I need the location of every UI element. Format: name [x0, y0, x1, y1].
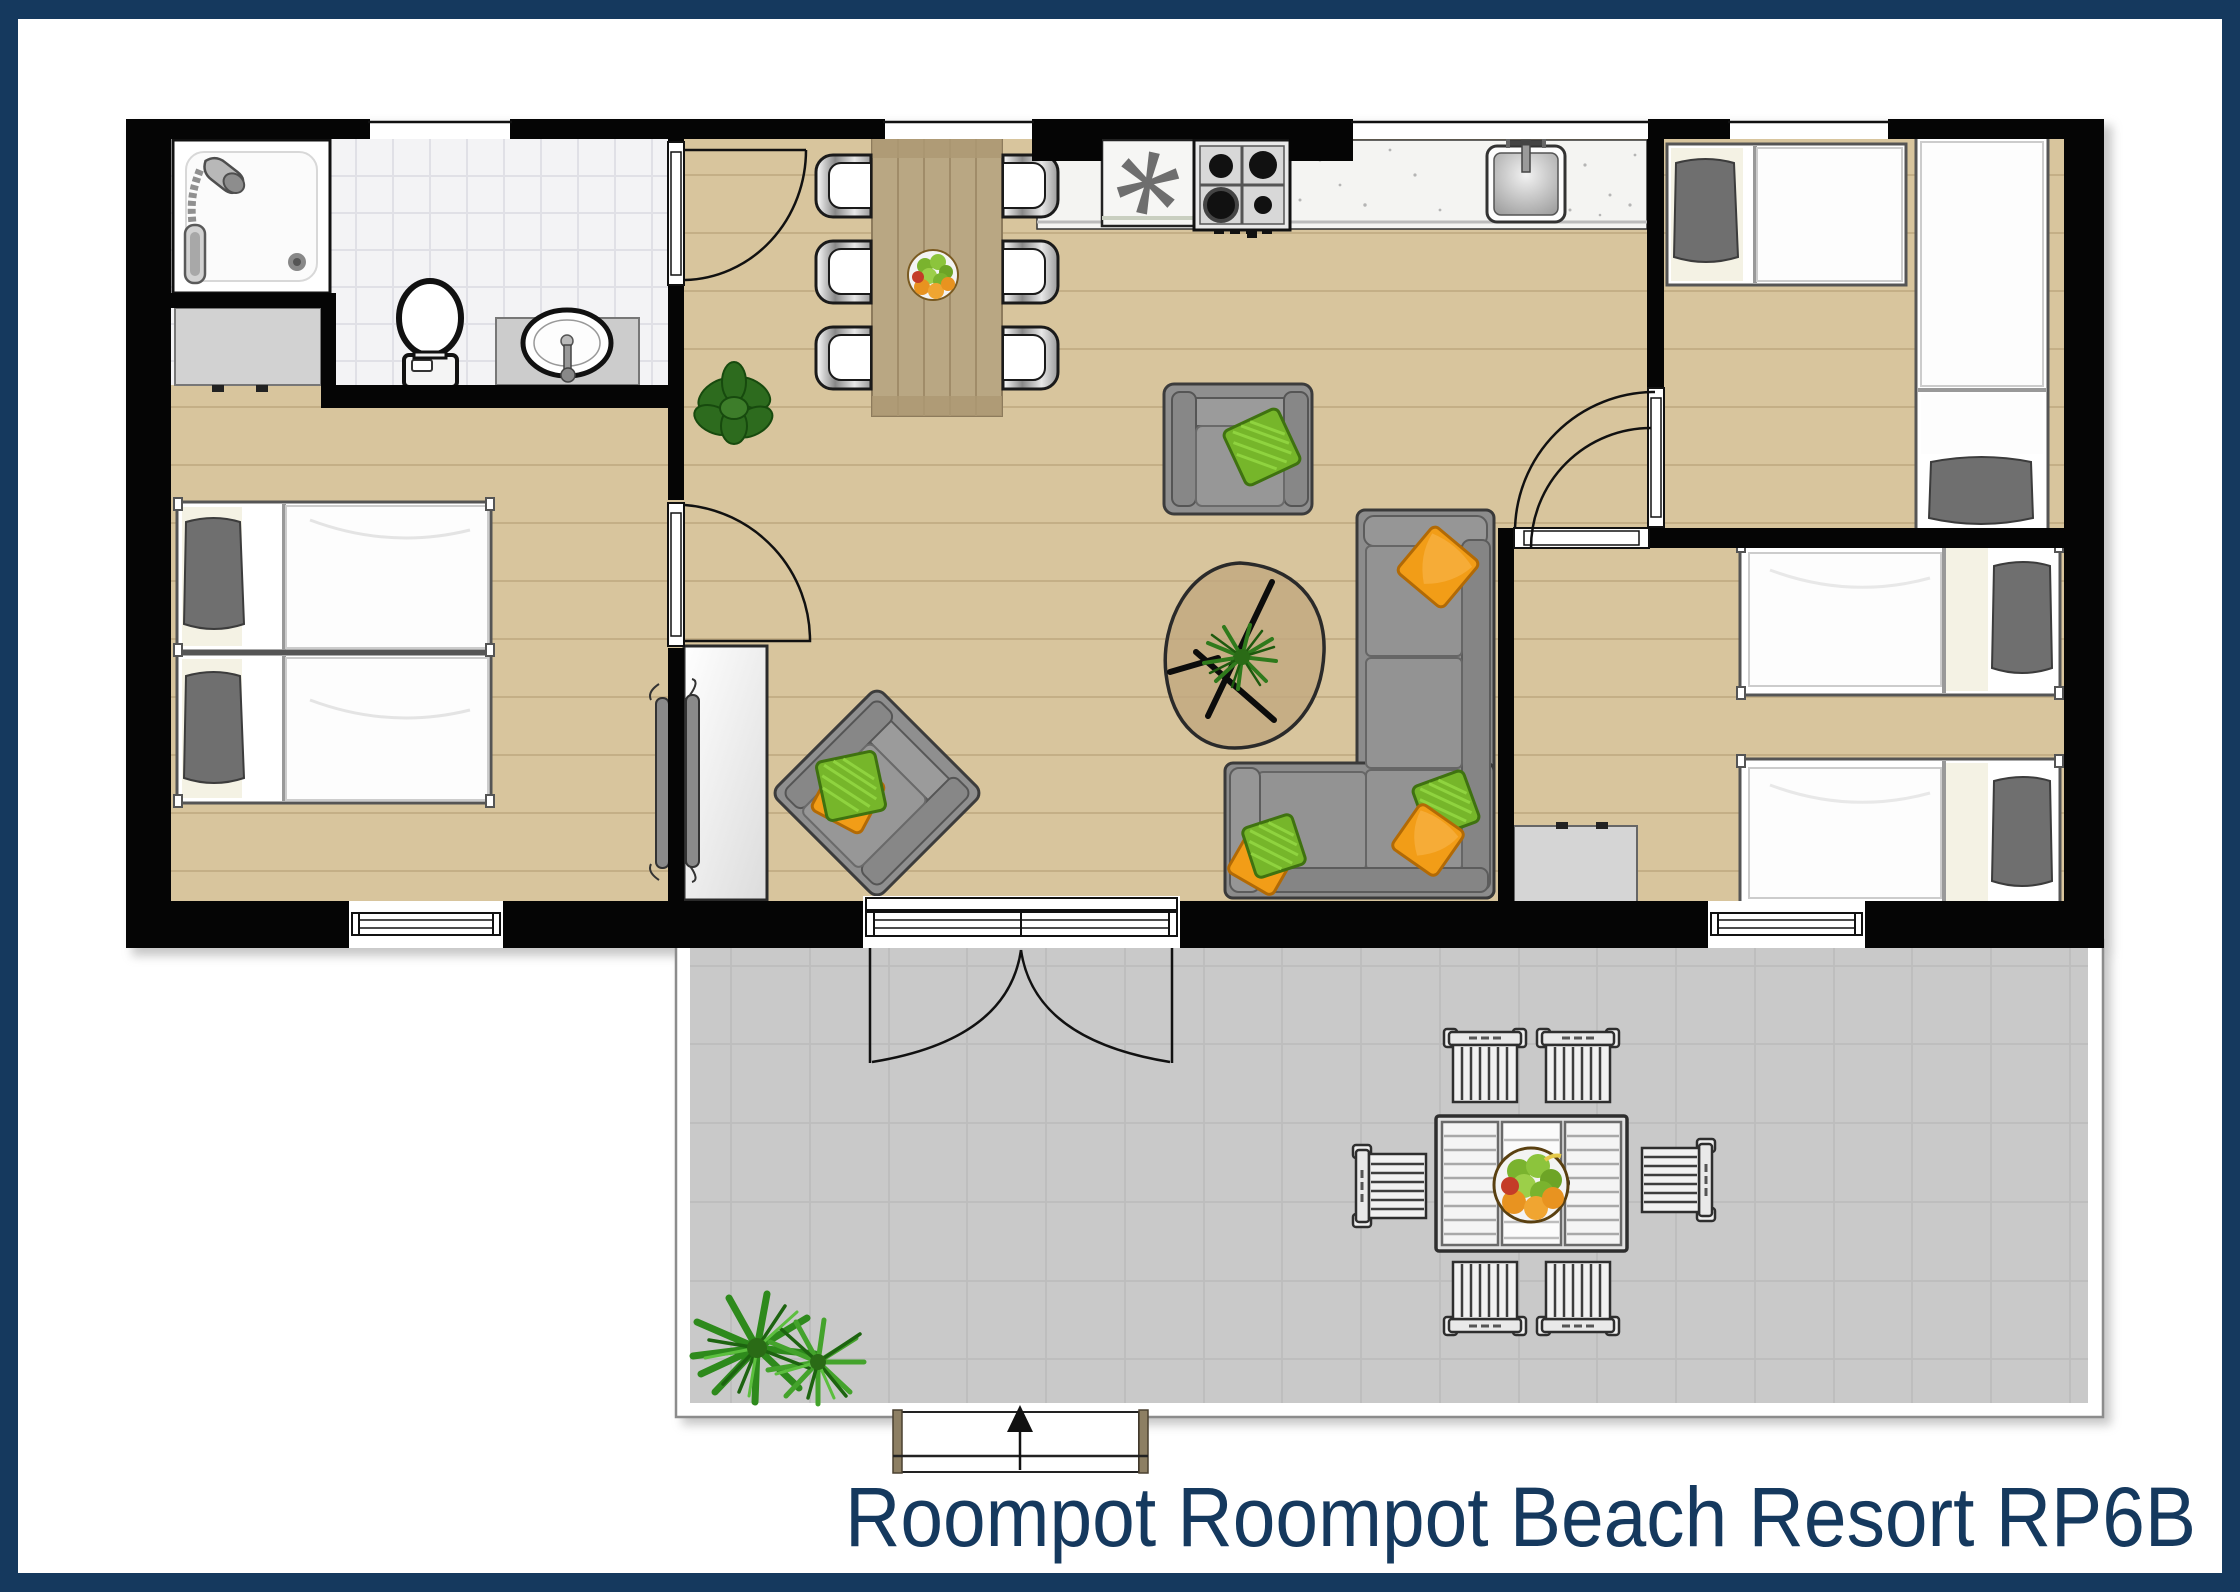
svg-text:Roompot Roompot Beach Resort R: Roompot Roompot Beach Resort RP6B [845, 1470, 2196, 1564]
